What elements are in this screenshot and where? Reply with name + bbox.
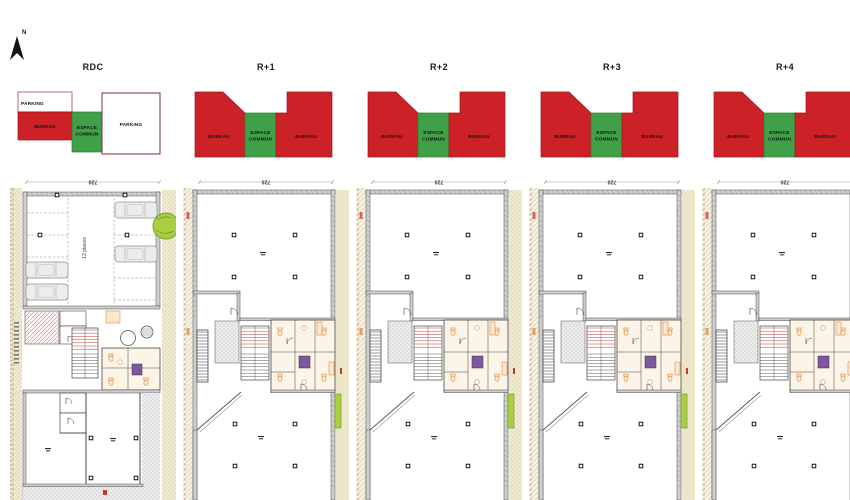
floor-plan-r4: 720 xyxy=(702,176,850,500)
floor-plan-rdc: 72012 places xyxy=(10,176,176,500)
svg-text:PARKING: PARKING xyxy=(21,101,44,107)
floor-plan-r1: 720 xyxy=(183,176,349,500)
svg-text:COMMUN: COMMUN xyxy=(422,137,445,143)
zone-diagram-r4: BUREAUESPACECOMMUNBUREAU xyxy=(702,86,850,164)
svg-text:BUREAU: BUREAU xyxy=(641,134,663,140)
svg-text:BUREAU: BUREAU xyxy=(468,134,490,140)
svg-text:ESPACE: ESPACE xyxy=(596,130,617,136)
zone-diagram-r1: BUREAUESPACECOMMUNBUREAU xyxy=(183,86,349,164)
svg-text:COMMUN: COMMUN xyxy=(75,132,98,138)
svg-text:720: 720 xyxy=(781,178,790,184)
svg-text:ESPACE: ESPACE xyxy=(423,130,444,136)
svg-text:720: 720 xyxy=(435,178,444,184)
svg-text:COMMUN: COMMUN xyxy=(249,137,272,143)
floor-column-rdc: RDC PARKINGBUREAUESPACECOMMUNPARKING 720… xyxy=(10,0,176,500)
floor-column-r4: R+4 BUREAUESPACECOMMUNBUREAU 720 xyxy=(702,0,850,500)
svg-text:720: 720 xyxy=(608,178,617,184)
svg-text:ESPACE: ESPACE xyxy=(77,125,98,131)
svg-text:720: 720 xyxy=(262,178,271,184)
floor-column-r2: R+2 BUREAUESPACECOMMUNBUREAU 720 xyxy=(356,0,522,500)
floor-plan-r3: 720 xyxy=(529,176,695,500)
floor-column-r3: R+3 BUREAUESPACECOMMUNBUREAU 720 xyxy=(529,0,695,500)
floor-plan-r2: 720 xyxy=(356,176,522,500)
svg-text:COMMUN: COMMUN xyxy=(595,137,618,143)
zone-diagram-rdc: PARKINGBUREAUESPACECOMMUNPARKING xyxy=(10,86,176,164)
floor-title-r4: R+4 xyxy=(702,62,850,72)
svg-text:BUREAU: BUREAU xyxy=(814,134,836,140)
svg-text:BUREAU: BUREAU xyxy=(208,134,230,140)
floor-title-r2: R+2 xyxy=(356,62,522,72)
svg-text:ESPACE: ESPACE xyxy=(769,130,790,136)
svg-text:COMMUN: COMMUN xyxy=(768,137,791,143)
svg-text:BUREAU: BUREAU xyxy=(295,134,317,140)
svg-text:BUREAU: BUREAU xyxy=(727,134,749,140)
zone-diagram-r3: BUREAUESPACECOMMUNBUREAU xyxy=(529,86,695,164)
floor-title-r1: R+1 xyxy=(183,62,349,72)
svg-text:720: 720 xyxy=(89,178,98,184)
svg-text:BUREAU: BUREAU xyxy=(34,124,56,130)
floor-title-rdc: RDC xyxy=(10,62,176,72)
zone-diagram-r2: BUREAUESPACECOMMUNBUREAU xyxy=(356,86,522,164)
svg-text:12 places: 12 places xyxy=(82,237,88,259)
svg-text:ESPACE: ESPACE xyxy=(250,130,271,136)
floor-column-r1: R+1 BUREAUESPACECOMMUNBUREAU 720 xyxy=(183,0,349,500)
svg-text:BUREAU: BUREAU xyxy=(554,134,576,140)
svg-text:BUREAU: BUREAU xyxy=(381,134,403,140)
floor-title-r3: R+3 xyxy=(529,62,695,72)
svg-text:PARKING: PARKING xyxy=(120,122,143,128)
